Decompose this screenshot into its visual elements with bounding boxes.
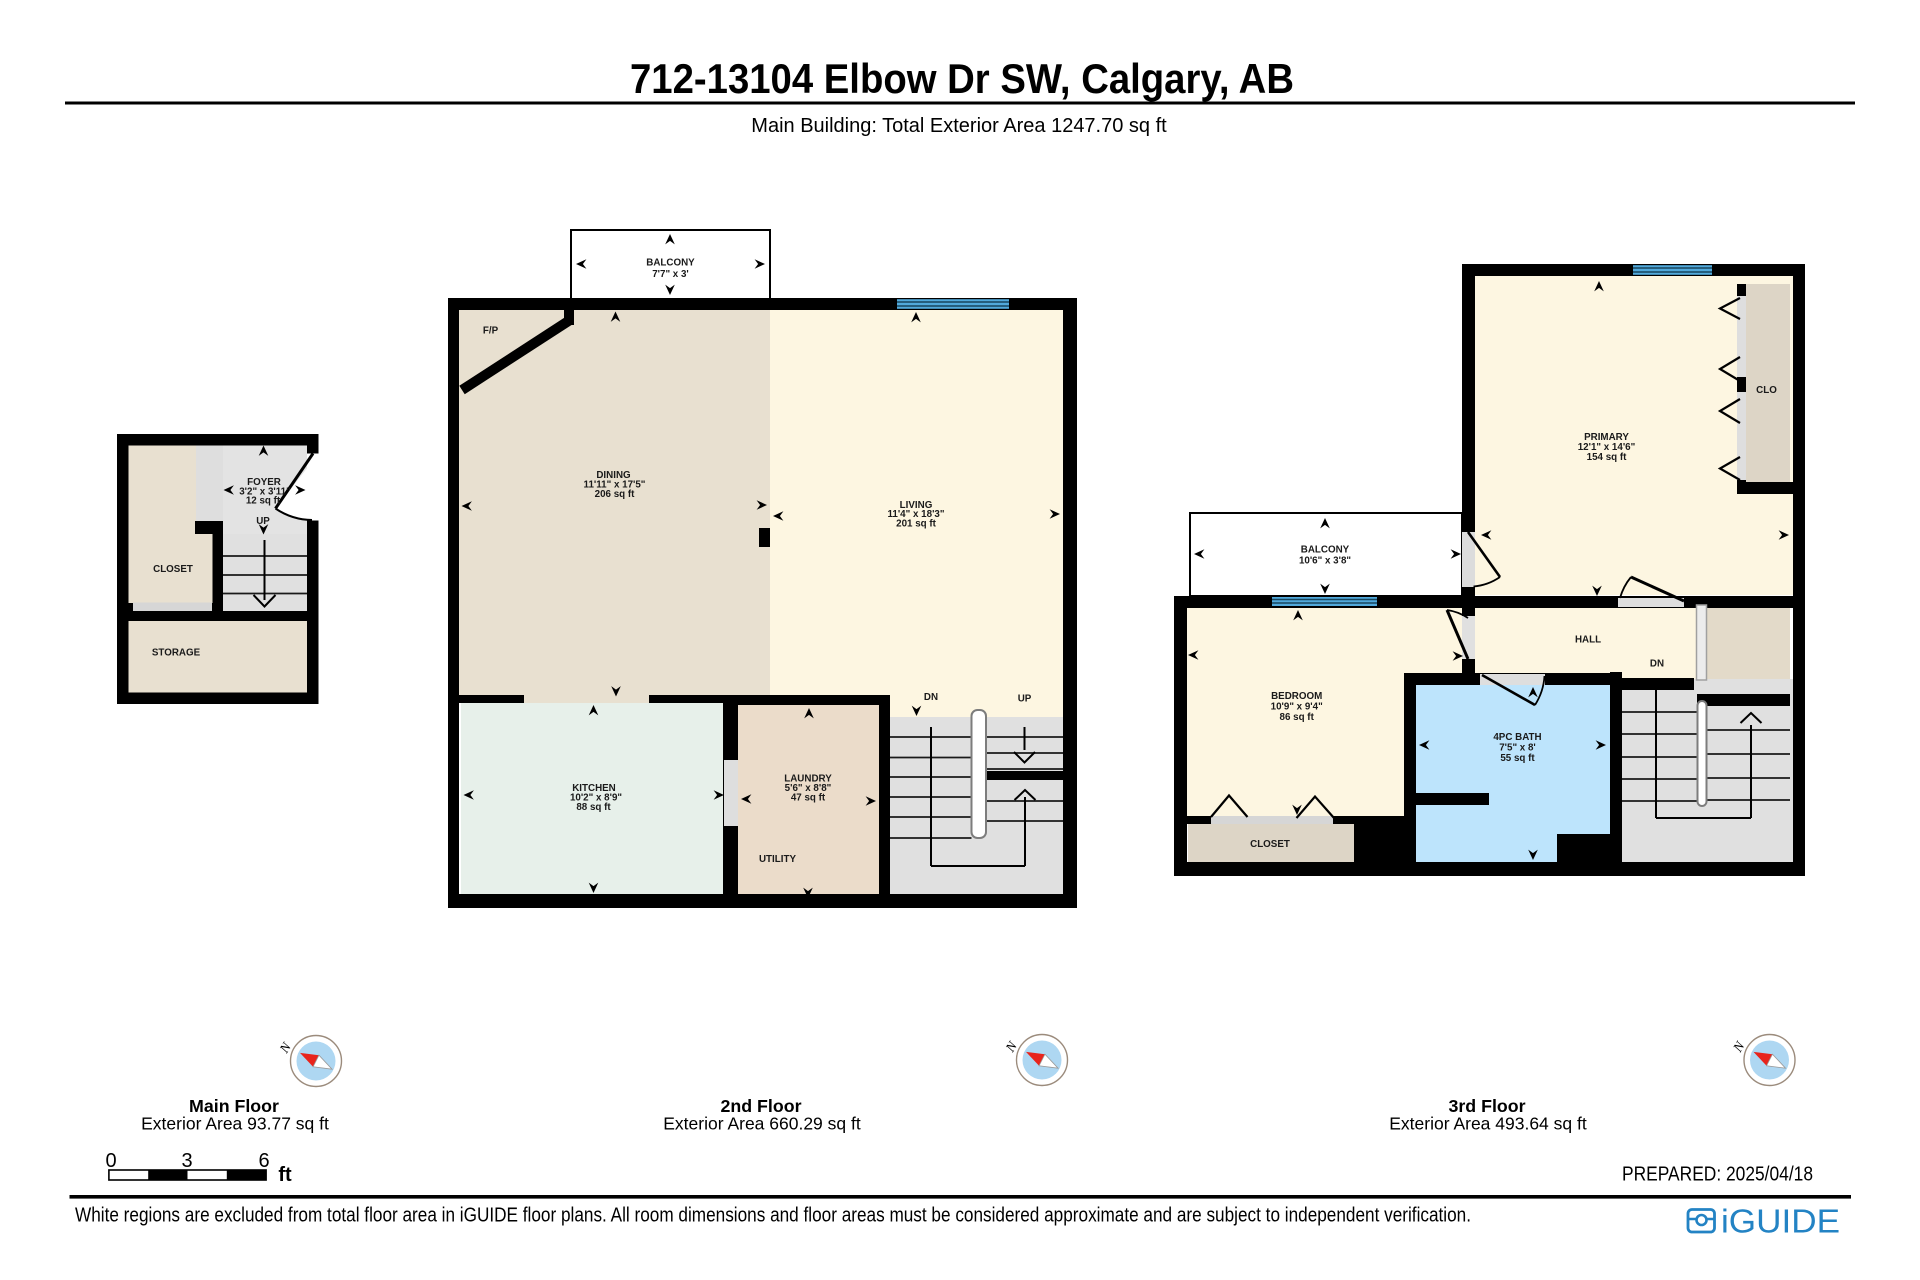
svg-text:10'6" x 3'8": 10'6" x 3'8" <box>1299 555 1351 566</box>
svg-text:DN: DN <box>1650 658 1664 669</box>
svg-text:86 sq ft: 86 sq ft <box>1280 712 1315 723</box>
svg-text:7'7" x 3': 7'7" x 3' <box>652 269 689 280</box>
svg-text:Exterior Area 660.29 sq ft: Exterior Area 660.29 sq ft <box>663 1114 861 1134</box>
svg-text:F/P: F/P <box>483 325 499 336</box>
svg-text:iGUIDE: iGUIDE <box>1721 1204 1840 1241</box>
svg-text:CLOSET: CLOSET <box>153 564 193 575</box>
svg-text:10'9" x 9'4": 10'9" x 9'4" <box>1271 702 1323 713</box>
svg-text:Exterior Area 493.64 sq ft: Exterior Area 493.64 sq ft <box>1389 1114 1587 1134</box>
svg-text:CLO: CLO <box>1756 385 1777 396</box>
svg-text:ft: ft <box>278 1164 292 1186</box>
svg-text:UP: UP <box>256 516 270 527</box>
svg-text:STORAGE: STORAGE <box>152 648 201 659</box>
svg-text:DN: DN <box>924 692 938 703</box>
svg-text:Exterior Area 93.77 sq ft: Exterior Area 93.77 sq ft <box>141 1114 329 1134</box>
svg-text:88 sq ft: 88 sq ft <box>576 802 611 813</box>
svg-text:47 sq ft: 47 sq ft <box>791 793 826 804</box>
svg-text:PREPARED: 2025/04/18: PREPARED: 2025/04/18 <box>1622 1164 1813 1186</box>
svg-text:206 sq ft: 206 sq ft <box>595 489 635 500</box>
svg-text:55 sq ft: 55 sq ft <box>1500 753 1535 764</box>
svg-text:201 sq ft: 201 sq ft <box>896 518 936 529</box>
svg-text:CLOSET: CLOSET <box>1250 839 1290 850</box>
svg-text:BALCONY: BALCONY <box>1301 544 1350 555</box>
svg-text:154 sq ft: 154 sq ft <box>1587 452 1627 463</box>
svg-text:BALCONY: BALCONY <box>646 258 695 269</box>
svg-text:712-13104 Elbow Dr SW, Calgary: 712-13104 Elbow Dr SW, Calgary, AB <box>630 55 1294 102</box>
svg-text:12 sq ft: 12 sq ft <box>246 496 281 507</box>
svg-text:HALL: HALL <box>1575 634 1601 645</box>
svg-text:Main Building: Total Exterior: Main Building: Total Exterior Area 1247.… <box>751 115 1167 137</box>
svg-text:4PC BATH: 4PC BATH <box>1493 732 1541 743</box>
svg-text:6: 6 <box>258 1150 269 1172</box>
svg-text:UTILITY: UTILITY <box>759 854 796 865</box>
svg-text:UP: UP <box>1018 694 1032 705</box>
svg-text:3: 3 <box>181 1150 192 1172</box>
svg-text:White regions are excluded fro: White regions are excluded from total fl… <box>75 1205 1471 1227</box>
svg-text:0: 0 <box>105 1150 116 1172</box>
svg-text:BEDROOM: BEDROOM <box>1271 691 1322 702</box>
svg-text:7'5" x 8': 7'5" x 8' <box>1499 742 1536 753</box>
